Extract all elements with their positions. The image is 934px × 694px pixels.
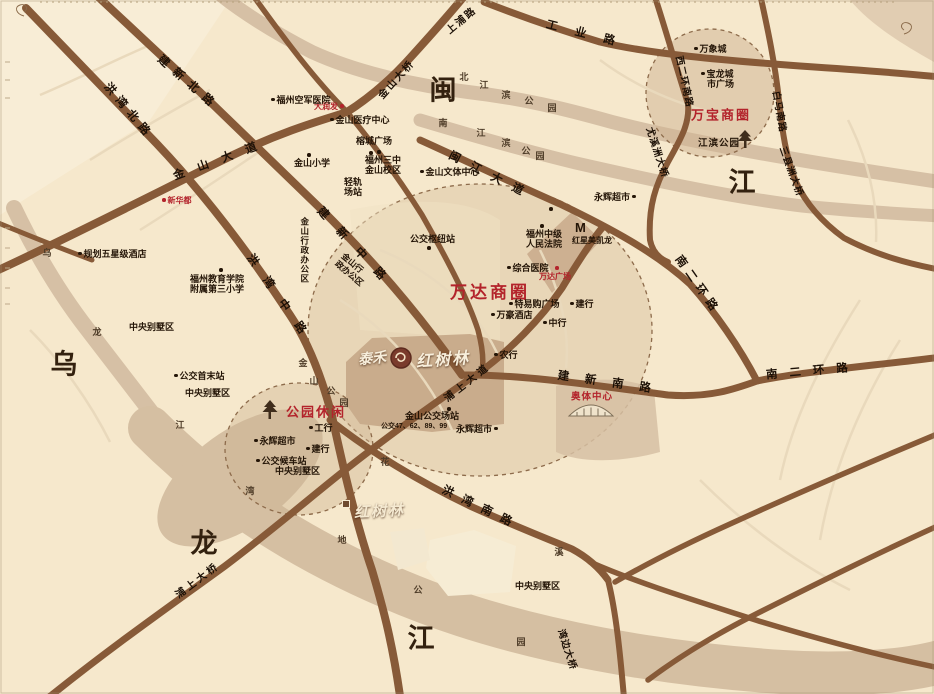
poi-dot (427, 246, 431, 250)
river-char-jiang2: 江 (408, 623, 435, 654)
poi-dot (219, 268, 223, 272)
poi-intermediate-court: 福州中级人民法院 (526, 229, 562, 250)
north-bank-char: 公 (524, 96, 533, 106)
poi-wanda-plaza: 万达广场 (539, 272, 571, 281)
river-char-min: 闽 (430, 75, 457, 106)
north-bank-char: 滨 (501, 90, 510, 100)
river-char-wu: 乌 (51, 349, 78, 380)
south-bank-char: 江 (476, 128, 485, 138)
poi-general-hospital: 综合医院 (505, 263, 549, 273)
poi-mixc-mall: 万象城 (692, 44, 727, 54)
poi-boc-bank: 中行 (541, 318, 567, 328)
poi-powerlong-plaza: 宝龙城 市广场 (699, 69, 734, 90)
brand-logo-text: 泰禾 (357, 347, 387, 370)
poi-abc-bank: 农行 (492, 350, 518, 360)
river-small-char: 江 (175, 420, 184, 430)
north-bank-char: 北 (459, 72, 468, 82)
poi-jinshan-medical: 金山医疗中心 (328, 115, 390, 125)
jinshan-park-char: 金 (298, 358, 307, 368)
poi-lightrail-station: 轻轨场站 (344, 177, 362, 198)
poi-jinshan-primary: 金山小学 (294, 158, 330, 168)
poi-red-star-macalline: 红星美凯龙 (572, 236, 612, 245)
wanbao-circle-label: 万宝商圈 (691, 109, 751, 124)
poi-yonghui-market: 永辉超市 (252, 436, 296, 446)
poi-marriott-hotel: 万豪酒店 (489, 310, 533, 320)
poi-bus-routes: 公交47、62、89、99 (381, 423, 447, 431)
wetland-char: 公 (413, 585, 422, 595)
creek-char: 溪 (554, 547, 563, 557)
project-site-logo: 红树林 (342, 500, 405, 521)
poi-planned-hotel: 规划五星级酒店 (76, 249, 147, 259)
poi-dot (369, 151, 373, 155)
poi-yonghui-market: 永辉超市 (456, 424, 500, 434)
river-small-char: 龙 (92, 327, 101, 337)
river-char-jiang: 江 (729, 167, 756, 198)
poi-rongcheng-square: 榕城广场 (356, 136, 392, 146)
poi-central-villas: 中央别墅区 (185, 388, 230, 398)
project-logo-center: 泰禾 红树林 (358, 346, 470, 370)
poi-riverside-park: 江滨公园 (698, 139, 740, 150)
north-bank-char: 江 (479, 80, 488, 90)
poi-dot (555, 266, 559, 270)
poi-xinhuadu: 新华都 (160, 196, 192, 205)
poi-tesco-plaza: 特易购广场 (507, 299, 560, 309)
south-bank-char: 公 (521, 146, 530, 156)
wetland-char: 园 (516, 637, 525, 647)
river-small-char: 乌 (42, 248, 51, 258)
river-char-long: 龙 (191, 528, 218, 559)
poi-dot (307, 153, 311, 157)
river-small-char: 湾 (245, 486, 254, 496)
poi-airforce-hospital: 福州空军医院 (269, 95, 331, 105)
site-logo-text: 红树林 (353, 499, 405, 523)
park-leisure-label: 公园休闲 (286, 406, 346, 421)
project-logo-text: 红树林 (415, 344, 471, 372)
jinshan-park-char: 公 (326, 386, 335, 396)
poi-dot (377, 150, 381, 154)
seal-icon (342, 500, 350, 508)
poi-bus-hub: 公交枢纽站 (410, 234, 455, 244)
south-bank-char: 园 (535, 151, 544, 161)
poi-jinshan-bus-depot: 金山公交场站 (405, 411, 459, 421)
south-bank-char: 滨 (501, 138, 510, 148)
poi-dot (540, 224, 544, 228)
location-map: 建新北路 洪湾北路 金山大道 金山大桥 上浦路 工业路 西二环南路 白马南路 尤… (0, 0, 934, 694)
south-bank-char: 南 (438, 118, 447, 128)
poi-jinshan-sports-center: 金山文体中心 (418, 167, 480, 177)
poi-admin-area: 金山行政办公区 (299, 217, 309, 284)
wetland-char: 地 (337, 535, 346, 545)
poi-education-school: 福州教育学院附属第三小学 (190, 274, 244, 295)
poi-icbc-bank: 工行 (307, 423, 333, 433)
poi-ccb-bank: 建行 (568, 299, 594, 309)
olympic-center-label: 奥体中心 (571, 393, 613, 404)
jinshan-park-char: 山 (309, 376, 318, 386)
poi-central-villas: 中央别墅区 (129, 322, 174, 332)
poi-bus-terminus: 公交首末站 (172, 371, 225, 381)
decor-border-strip (40, 1, 894, 3)
poi-bus-stop: 公交候车站 (254, 456, 307, 466)
metro-m-icon: M (575, 221, 586, 236)
poi-dot (447, 407, 451, 411)
brand-emblem-icon (390, 347, 412, 369)
poi-yonghui-market: 永辉超市 (594, 192, 638, 202)
poi-no3-middle-school: 福州三中金山校区 (365, 155, 401, 176)
creek-char: 花 (380, 457, 389, 467)
poi-central-villas: 中央别墅区 (275, 466, 320, 476)
poi-central-villas: 中央别墅区 (515, 581, 560, 591)
north-bank-char: 园 (547, 103, 556, 113)
poi-ccb-bank: 建行 (304, 444, 330, 454)
poi-dot (549, 207, 553, 211)
